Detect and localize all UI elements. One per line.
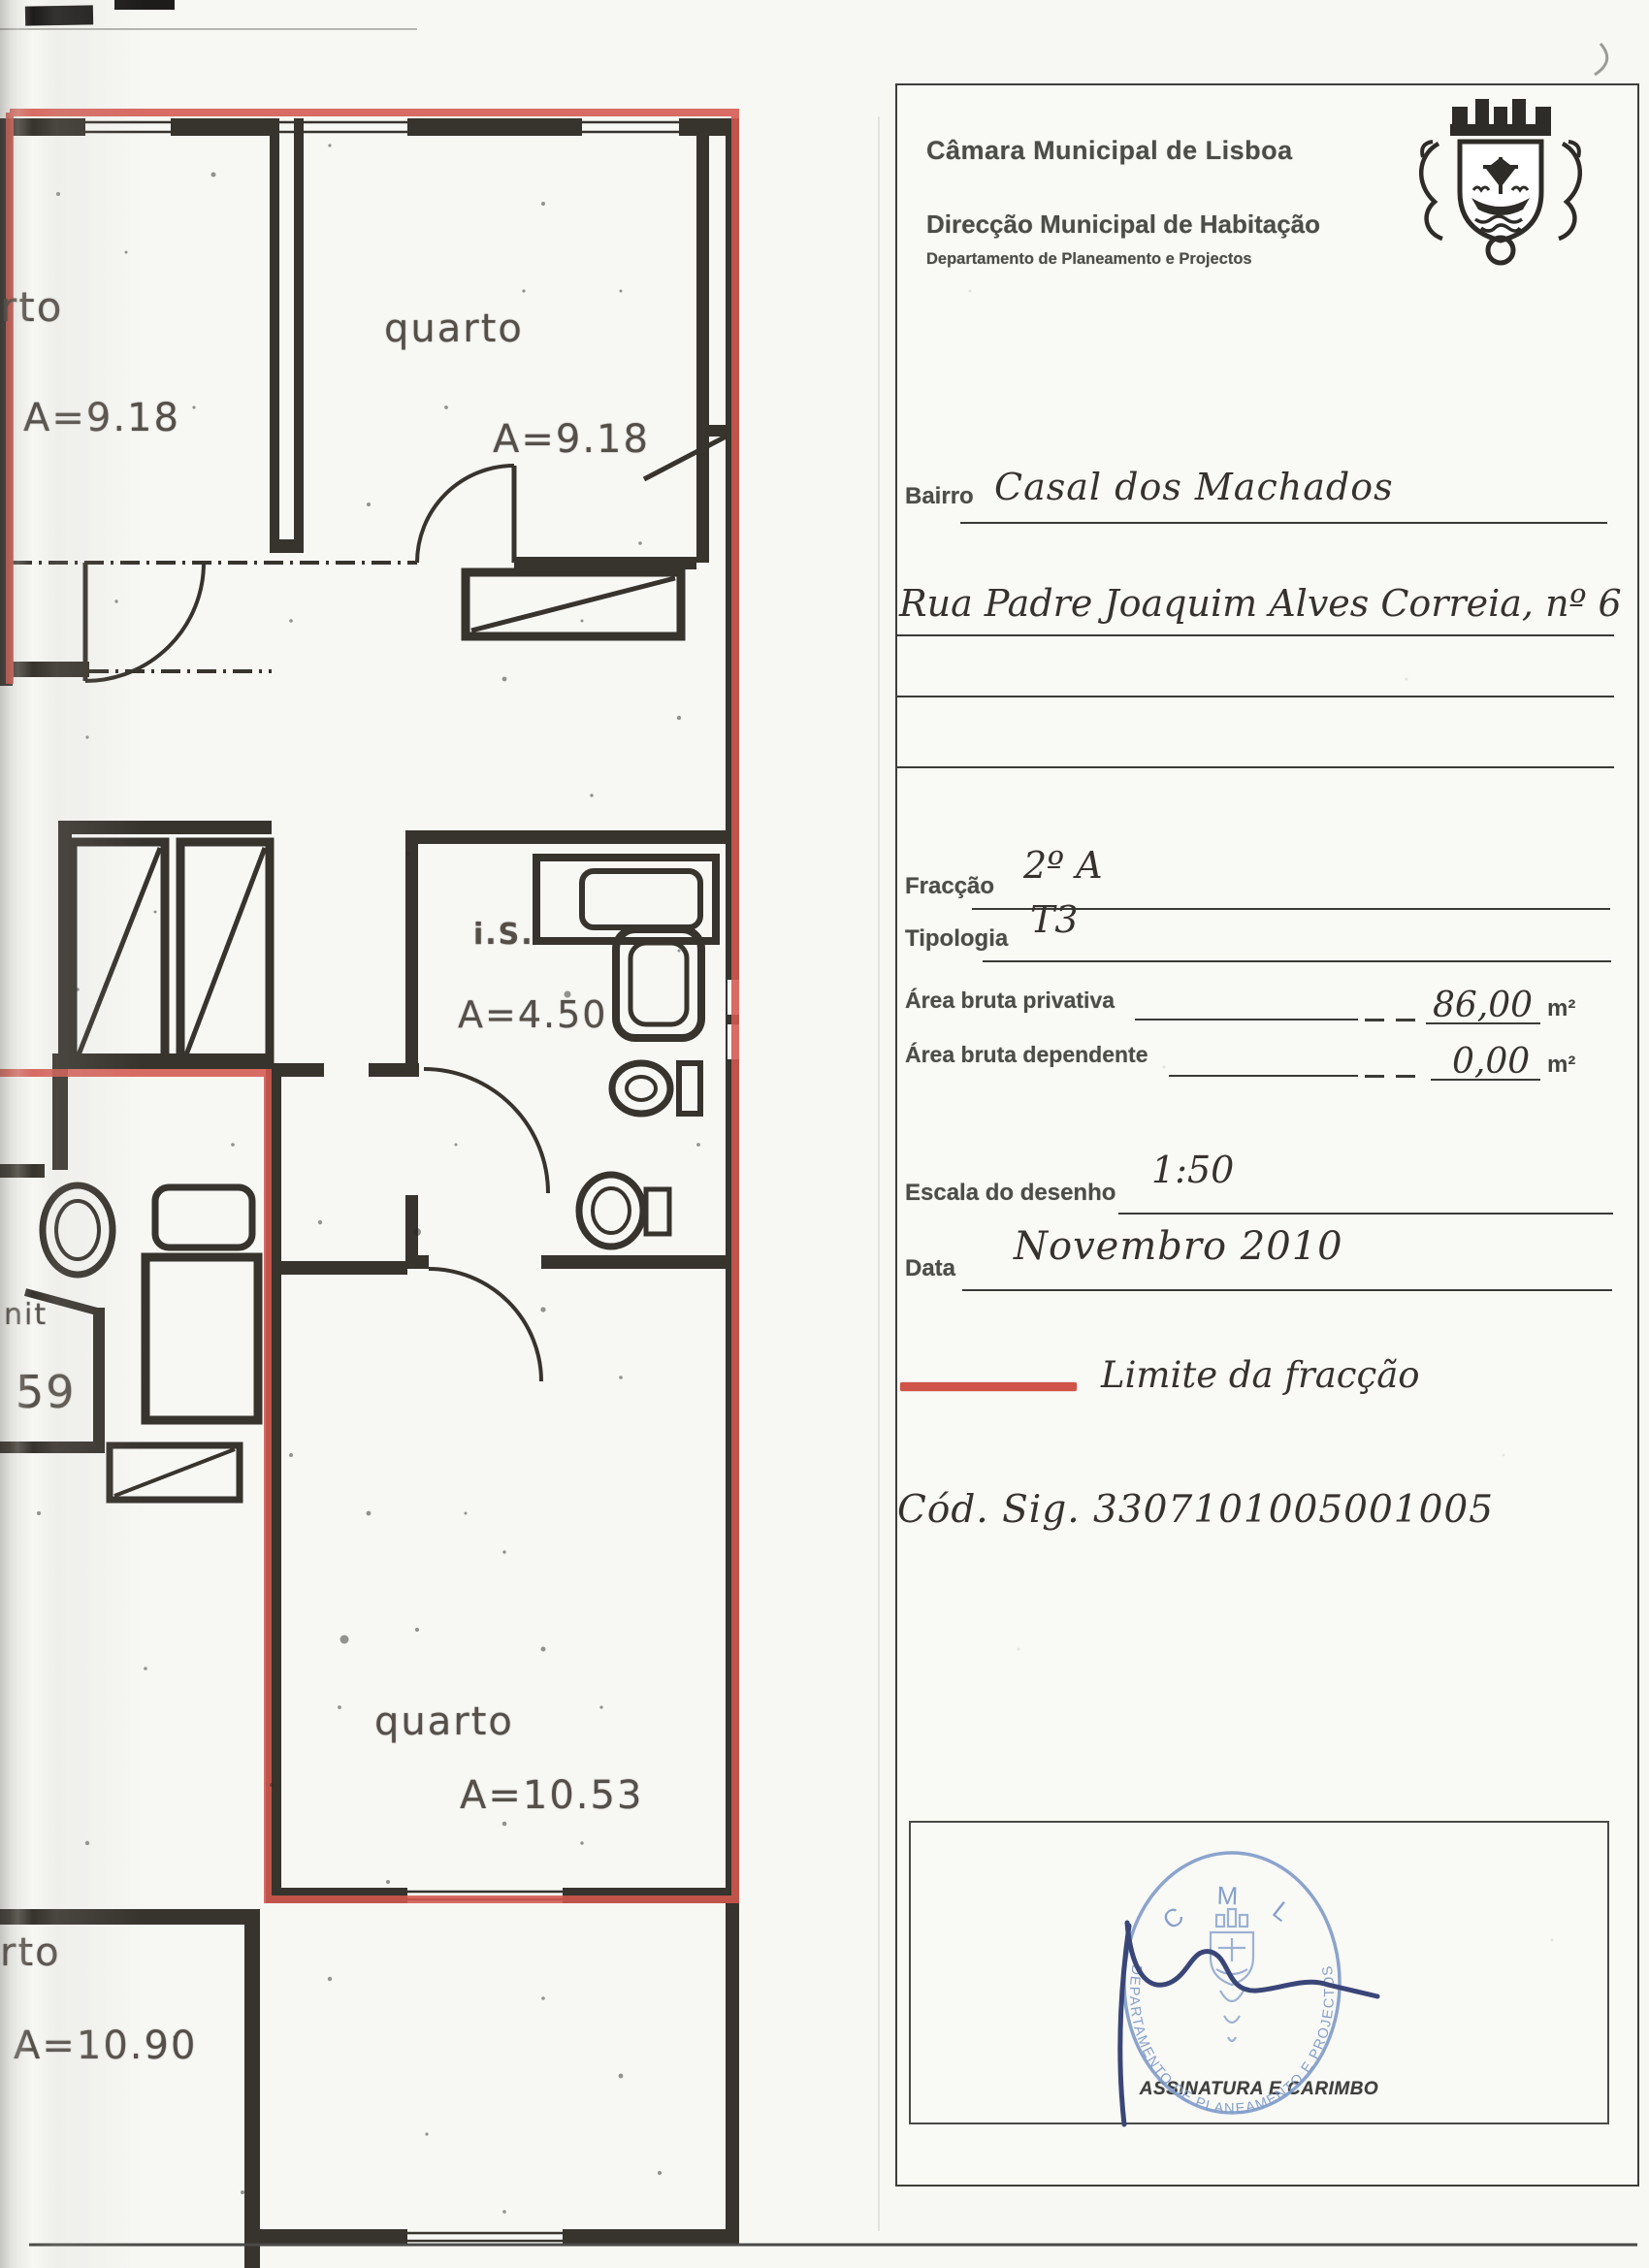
area-dependente-line bbox=[1169, 1075, 1358, 1077]
room-area-label: A=10.90 bbox=[14, 2024, 197, 2068]
fraccao-label: Fracção bbox=[905, 873, 994, 900]
cod-sig-text: Cód. Sig. 3307101005001005 bbox=[897, 1488, 1494, 1532]
blank-line-2 bbox=[897, 766, 1614, 768]
area-dependente-dashes bbox=[1365, 1075, 1425, 1078]
area-privativa-value: 86,00 bbox=[1433, 986, 1533, 1025]
bairro-value: Casal dos Machados bbox=[994, 466, 1394, 508]
address-value: Rua Padre Joaquim Alves Correia, nº 6 bbox=[899, 582, 1622, 625]
room-area-label: A=9.18 bbox=[23, 396, 180, 440]
page-curl-mark bbox=[1595, 44, 1607, 75]
data-value: Novembro 2010 bbox=[1014, 1224, 1343, 1269]
lisbon-coat-of-arms-icon bbox=[1394, 85, 1607, 270]
room-area-label: A=4.50 bbox=[458, 993, 607, 1036]
direction-title: Direcção Municipal de Habitação bbox=[926, 210, 1320, 240]
room-area-label: A=9.18 bbox=[493, 417, 650, 462]
room-label-sanit-partial: nit bbox=[4, 1298, 48, 1332]
room-label-is-bathroom: i.S. bbox=[473, 918, 534, 952]
area-privativa-dashes bbox=[1365, 1019, 1425, 1021]
info-panel: Câmara Municipal de Lisboa Direcção Muni… bbox=[895, 83, 1639, 2187]
data-underline bbox=[962, 1289, 1612, 1291]
data-label: Data bbox=[905, 1255, 955, 1282]
area-dependente-unit: m² bbox=[1547, 1052, 1575, 1079]
room-area-label-partial: 59 bbox=[16, 1366, 77, 1418]
cml-round-stamp-icon: C M L DEPARTAMENTO DE PLANEAMENTO E PROJ… bbox=[1096, 1826, 1397, 2146]
plan-hatched-closets bbox=[25, 433, 733, 1500]
address-underline bbox=[897, 634, 1614, 636]
fraction-boundary-line bbox=[0, 113, 735, 1899]
tipologia-label: Tipologia bbox=[905, 925, 1008, 953]
area-privativa-value-underline bbox=[1426, 1022, 1540, 1024]
area-privativa-label: Área bruta privativa bbox=[905, 988, 1115, 1014]
tipologia-value: T3 bbox=[1030, 898, 1079, 941]
room-label-quarto-topleft-partial: rto bbox=[0, 283, 63, 331]
room-label-quarto-bottom-partial: rto bbox=[0, 1930, 61, 1975]
area-privativa-unit: m² bbox=[1547, 995, 1575, 1022]
blank-line-1 bbox=[897, 696, 1614, 697]
fraccao-value: 2º A bbox=[1023, 844, 1103, 887]
org-title: Câmara Municipal de Lisboa bbox=[926, 136, 1293, 166]
area-dependente-label: Área bruta dependente bbox=[905, 1042, 1148, 1068]
tipologia-underline bbox=[983, 960, 1611, 962]
escala-value: 1:50 bbox=[1151, 1149, 1234, 1191]
area-dependente-value: 0,00 bbox=[1452, 1042, 1530, 1082]
fraction-boundary-legend-label: Limite da fracção bbox=[1101, 1354, 1420, 1396]
area-privativa-line bbox=[1135, 1019, 1358, 1021]
escala-label: Escala do desenho bbox=[905, 1180, 1115, 1207]
escala-underline bbox=[1118, 1213, 1613, 1215]
room-area-label: A=10.53 bbox=[460, 1773, 643, 1818]
bairro-underline bbox=[960, 522, 1607, 524]
room-label-quarto-big: quarto bbox=[374, 1700, 514, 1744]
plan-hall-lines bbox=[13, 563, 417, 671]
fraction-boundary-legend-swatch bbox=[900, 1382, 1077, 1391]
handwritten-signature bbox=[1120, 1923, 1377, 2124]
bairro-label: Bairro bbox=[905, 483, 974, 510]
area-dependente-value-underline bbox=[1431, 1079, 1540, 1081]
department-title: Departamento de Planeamento e Projectos bbox=[926, 250, 1252, 269]
scanned-document-page: rto A=9.18 quarto A=9.18 i.S. A=4.50 nit… bbox=[0, 0, 1649, 2268]
paper-fold-line bbox=[878, 116, 880, 2231]
room-label-quarto-topright: quarto bbox=[384, 307, 524, 351]
